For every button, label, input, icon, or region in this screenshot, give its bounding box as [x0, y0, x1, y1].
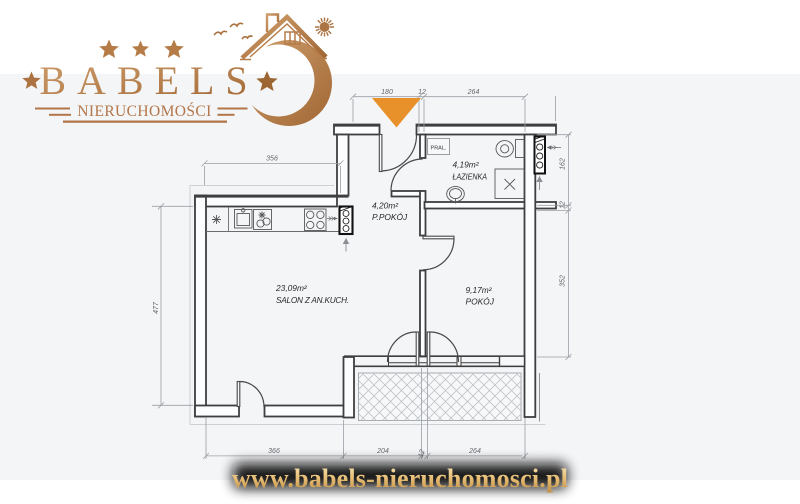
svg-text:264: 264 [467, 89, 480, 96]
svg-text:264: 264 [468, 448, 481, 455]
svg-text:356: 356 [266, 156, 278, 163]
svg-text:477: 477 [153, 301, 160, 314]
svg-text:4,20m²: 4,20m² [372, 201, 399, 211]
svg-text:ŁAZIENKA: ŁAZIENKA [453, 172, 488, 182]
svg-text:P.POKÓJ: P.POKÓJ [372, 212, 408, 222]
svg-text:180: 180 [381, 89, 393, 96]
svg-text:162: 162 [560, 158, 567, 170]
svg-text:BABELS: BABELS [39, 58, 258, 103]
svg-text:NIERUCHOMOŚCI: NIERUCHOMOŚCI [77, 103, 211, 120]
svg-text:12: 12 [560, 201, 567, 209]
svg-text:POKÓJ: POKÓJ [466, 297, 495, 307]
svg-text:12: 12 [418, 89, 426, 96]
svg-text:PRAL.: PRAL. [431, 146, 447, 152]
svg-text:9,17m²: 9,17m² [466, 285, 493, 295]
svg-text:23,09m²: 23,09m² [275, 283, 308, 293]
svg-text:SALON Z AN.KUCH.: SALON Z AN.KUCH. [276, 296, 349, 305]
svg-text:204: 204 [376, 448, 389, 455]
svg-text:366: 366 [268, 448, 280, 455]
svg-text:4,19m²: 4,19m² [453, 160, 480, 170]
svg-text:352: 352 [560, 275, 567, 287]
svg-text:www.babels-nieruchomosci.pl: www.babels-nieruchomosci.pl [232, 464, 568, 493]
